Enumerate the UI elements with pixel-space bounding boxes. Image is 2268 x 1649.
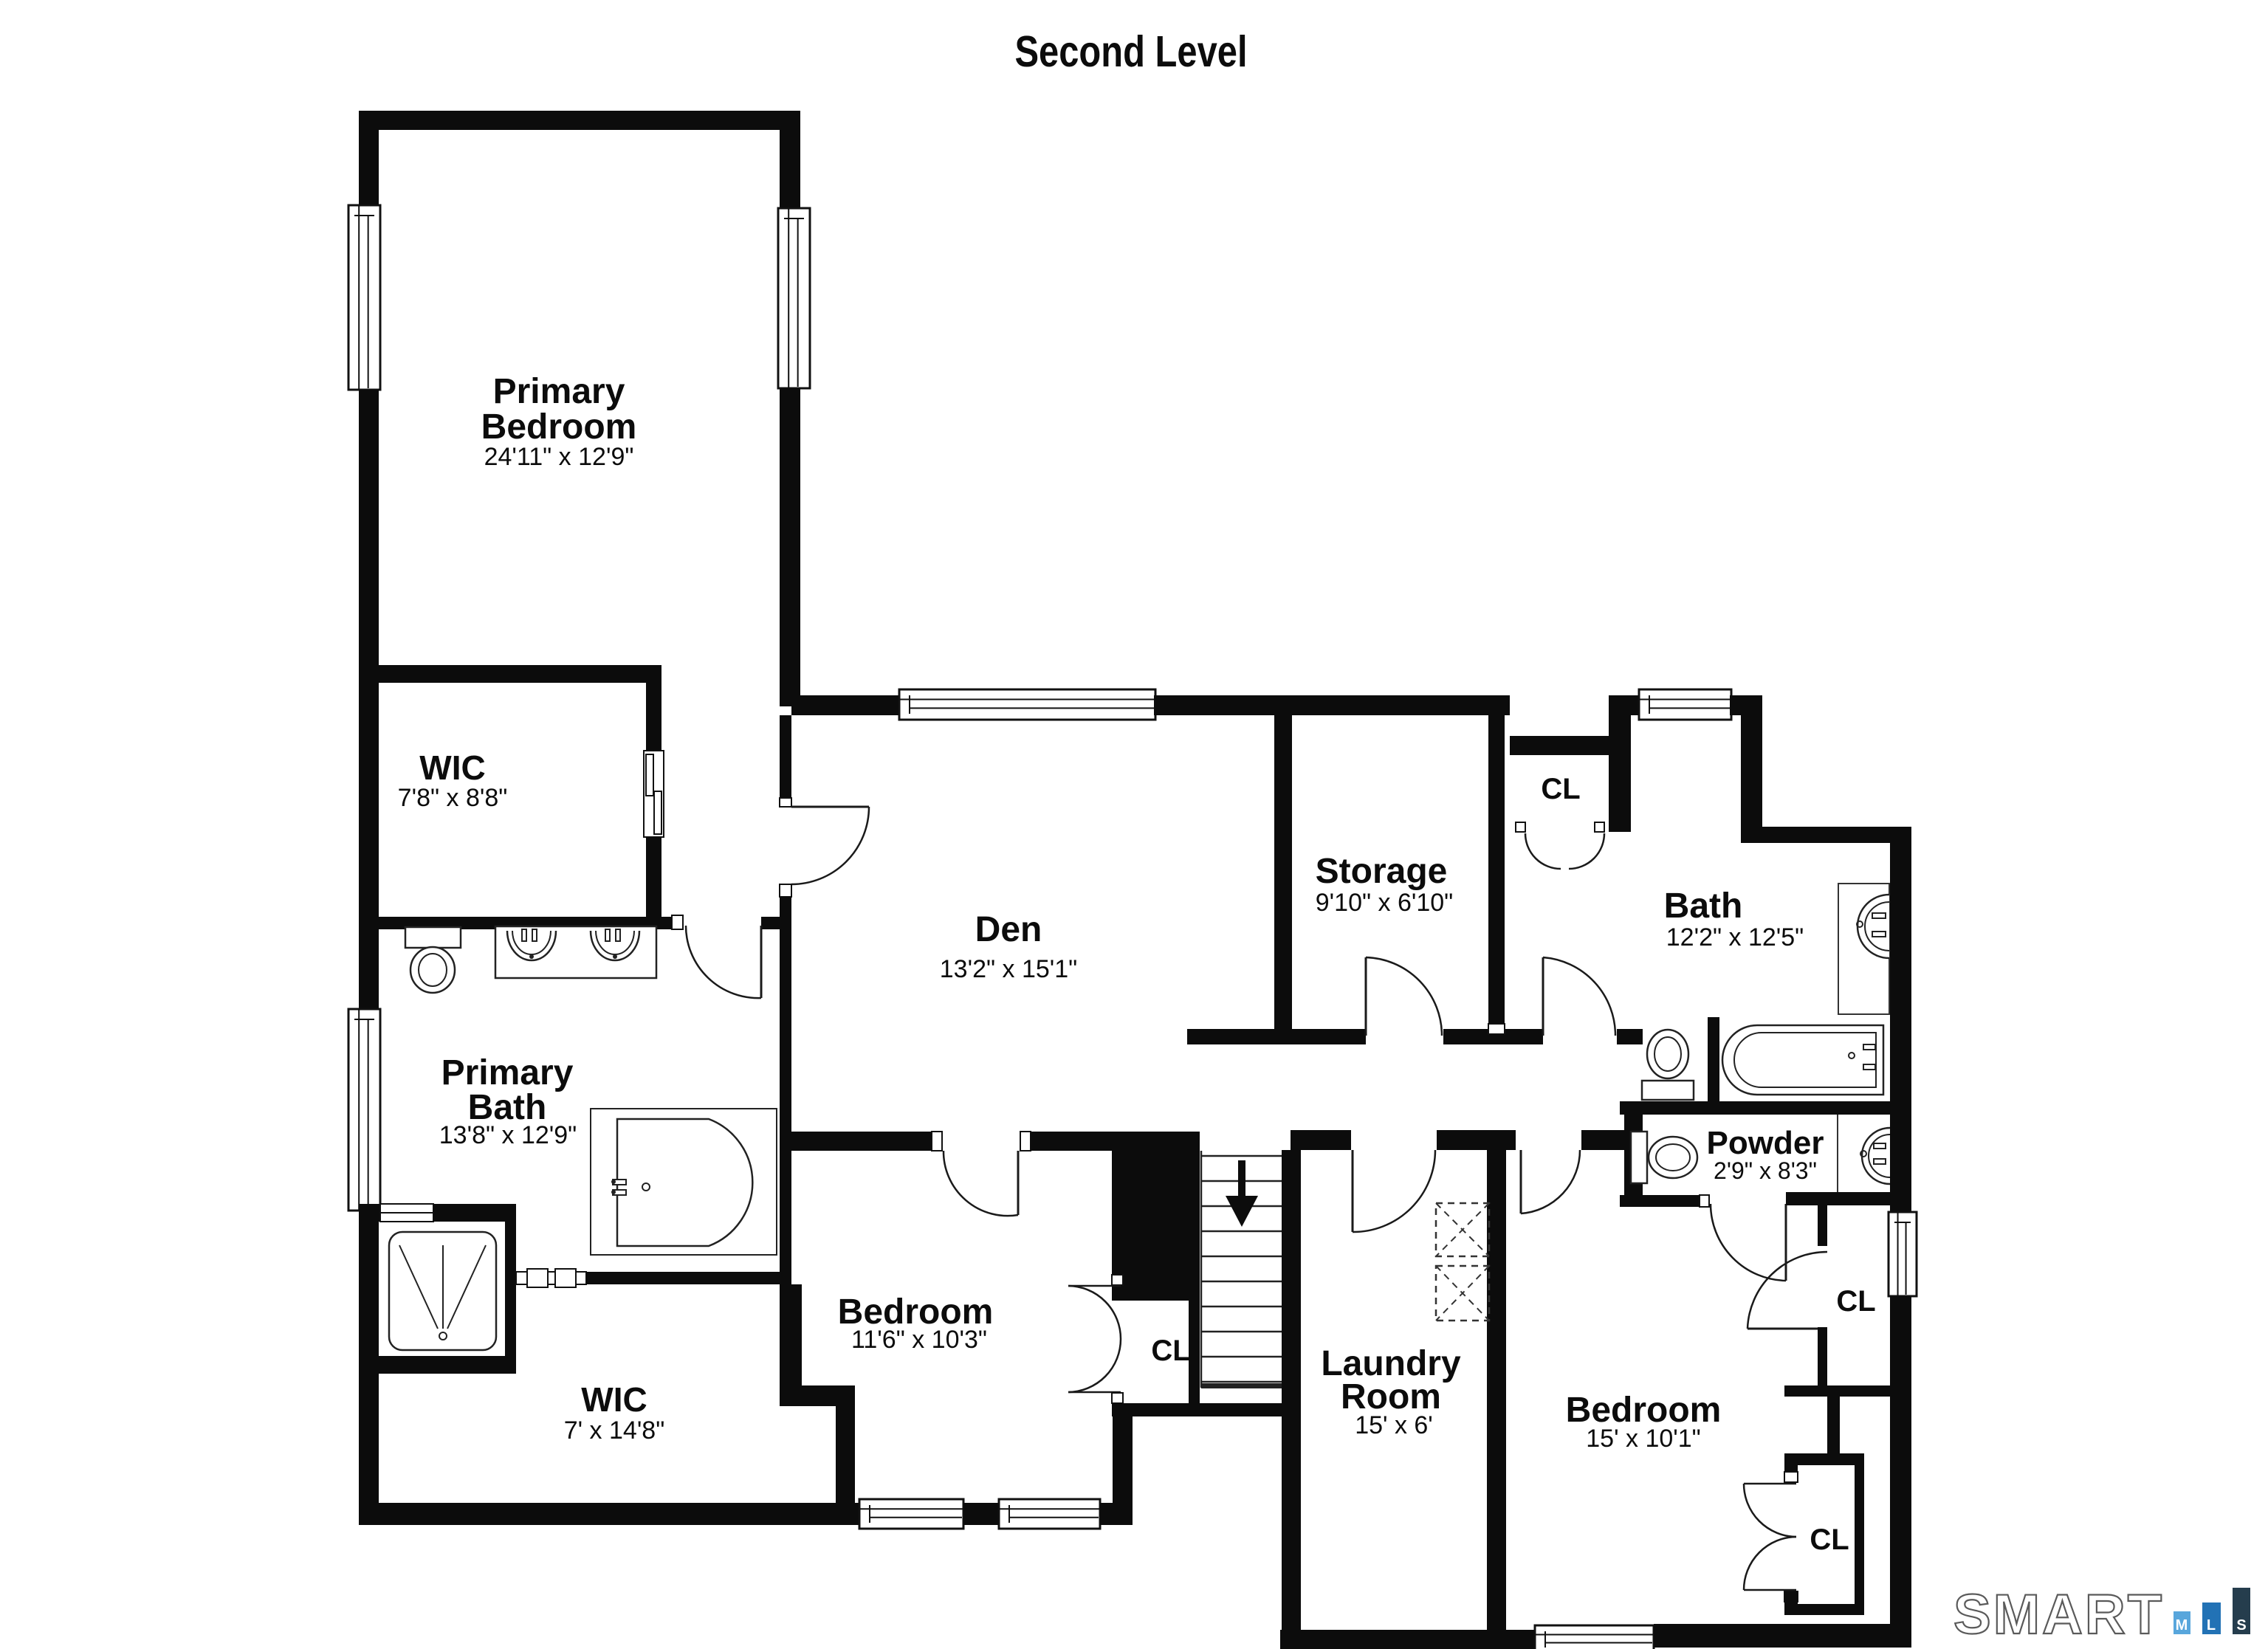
svg-text:CL: CL [1151,1335,1190,1367]
svg-text:Second Level: Second Level [1014,27,1247,76]
svg-text:7' x 14'8": 7' x 14'8" [564,1416,665,1445]
svg-text:11'6" x 10'3": 11'6" x 10'3" [851,1326,987,1354]
svg-text:13'2" x 15'1": 13'2" x 15'1" [940,955,1077,983]
svg-text:2'9" x 8'3": 2'9" x 8'3" [1714,1157,1817,1184]
svg-text:12'2" x 12'5": 12'2" x 12'5" [1666,923,1804,951]
svg-text:L: L [2207,1617,2216,1633]
svg-text:Primary: Primary [493,372,625,411]
svg-text:15' x 6': 15' x 6' [1355,1411,1433,1439]
svg-text:Powder: Powder [1707,1125,1824,1161]
svg-text:15' x 10'1": 15' x 10'1" [1586,1425,1701,1453]
svg-text:24'11" x 12'9": 24'11" x 12'9" [484,443,634,471]
svg-text:CL: CL [1836,1285,1875,1318]
svg-text:M: M [2176,1617,2188,1633]
svg-text:S: S [2236,1617,2246,1633]
svg-text:Den: Den [975,910,1042,949]
svg-text:Storage: Storage [1316,852,1448,891]
svg-text:Primary: Primary [441,1053,574,1092]
svg-text:SMART: SMART [1953,1583,2164,1646]
svg-text:Bath: Bath [1664,887,1743,926]
svg-text:CL: CL [1810,1524,1849,1556]
svg-text:9'10" x 6'10": 9'10" x 6'10" [1316,889,1453,917]
svg-text:Bedroom: Bedroom [481,407,637,447]
svg-text:WIC: WIC [581,1380,647,1419]
svg-text:CL: CL [1541,773,1580,805]
svg-text:WIC: WIC [419,748,485,787]
svg-text:13'8" x 12'9": 13'8" x 12'9" [439,1121,577,1149]
svg-text:7'8" x 8'8": 7'8" x 8'8" [398,784,508,812]
